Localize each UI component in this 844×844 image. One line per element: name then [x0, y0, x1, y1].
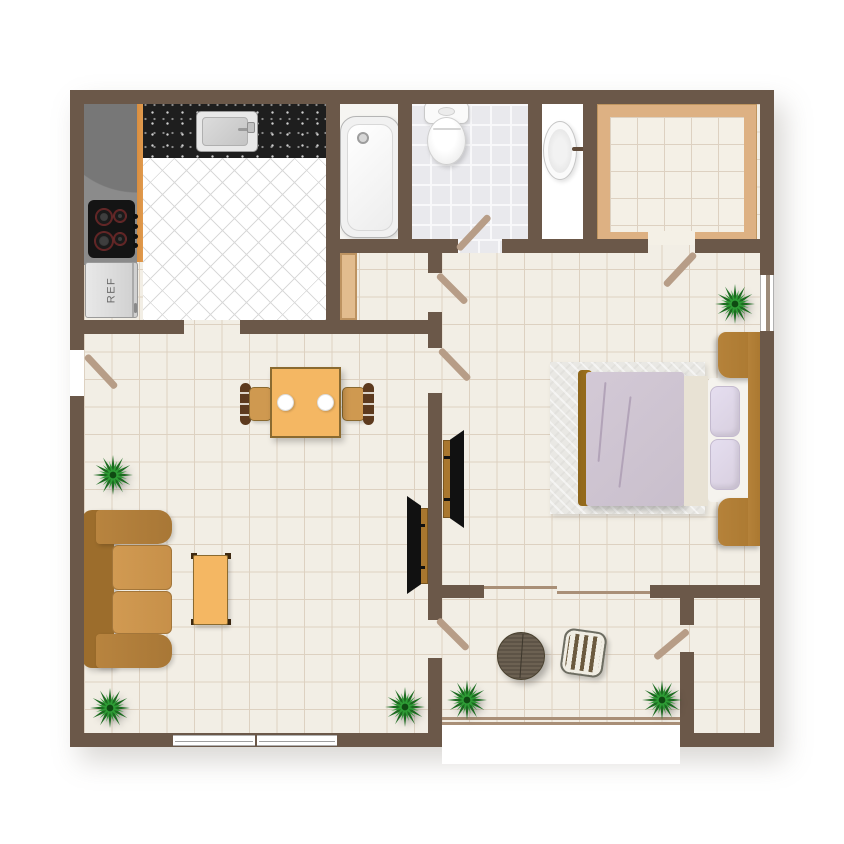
wall-bedroom-bottom-right — [650, 585, 760, 598]
wall-tub-right — [398, 104, 412, 240]
window-bedroom-right — [760, 275, 774, 331]
tv-mount-icon — [444, 498, 452, 501]
dining-chair-back — [363, 383, 374, 425]
ottoman — [193, 555, 228, 625]
floor-plan-page: { "labels": { "refrigerator": "REF" }, "… — [0, 0, 844, 844]
refrigerator-handle-icon — [134, 303, 137, 313]
hallway-cabinet — [340, 253, 357, 320]
plant-icon — [714, 283, 756, 325]
tv-mount-icon — [444, 456, 452, 459]
window-pane-line — [175, 741, 254, 742]
stove-burner-icon — [113, 232, 127, 246]
slatted-chair — [559, 627, 608, 679]
wall-outer-right — [760, 90, 774, 747]
plant-icon — [641, 679, 683, 721]
window-bottom-left — [173, 735, 255, 746]
wall-nook-left — [428, 658, 442, 747]
living-tv-screen-icon — [407, 496, 421, 594]
wall-outer-left — [70, 90, 84, 747]
sofa-armrest — [96, 510, 172, 544]
window-bottom-right — [257, 735, 337, 746]
entry-door-opening — [70, 350, 84, 396]
wall-storage-stub — [680, 598, 694, 625]
bedroom-sliding-door-panel — [557, 591, 650, 594]
pedestal-sink-basin — [548, 129, 572, 173]
toilet-seat-seam — [433, 128, 461, 130]
plant-icon — [92, 454, 134, 496]
stove-burner-icon — [95, 208, 113, 226]
sofa-cushion — [112, 545, 172, 590]
wall-kitchen-right — [326, 104, 340, 334]
balcony-sliding-door-panel — [442, 722, 680, 725]
bedroom-tv-screen-icon — [450, 430, 464, 528]
closet-door-threshold — [648, 231, 695, 245]
stove-knob-icon — [133, 234, 138, 239]
kitchen-floor — [143, 158, 326, 320]
toilet-flush-button-icon — [438, 107, 455, 116]
stove-burner-icon — [94, 231, 114, 251]
bed-sheet — [684, 376, 708, 506]
plate-icon — [317, 394, 334, 411]
wall-outer-bottom-left — [70, 733, 440, 747]
wall-tv-divider — [428, 393, 442, 620]
refrigerator-label: REF — [106, 277, 118, 304]
wall-bath-bottom-right — [695, 239, 760, 253]
wall-bedroom-bottom-left — [442, 585, 484, 598]
window-pane-line — [259, 741, 336, 742]
wall-outer-bottom-right — [680, 733, 774, 747]
plant-icon — [384, 686, 426, 728]
round-wicker-table — [497, 632, 545, 680]
bedroom-sliding-door-panel — [484, 586, 557, 589]
pillow — [710, 439, 740, 490]
stove-knob-icon — [133, 214, 138, 219]
kitchen-sink-basin — [202, 117, 248, 146]
sofa-cushion — [112, 591, 172, 634]
bathroom-tile-floor — [410, 104, 528, 239]
pillow — [710, 386, 740, 437]
bathtub-basin — [347, 124, 393, 231]
wall-bath-bottom-left — [326, 239, 458, 253]
dining-chair-right — [342, 387, 365, 421]
wall-living-top — [240, 320, 442, 334]
bathtub-drain-icon — [357, 132, 369, 144]
tv-mount-icon — [417, 566, 425, 569]
wall-kitchen-bottom — [84, 320, 184, 334]
stove — [88, 200, 135, 258]
wall-niche-left — [528, 104, 542, 239]
wall-hall-mid — [428, 312, 442, 348]
wall-hall-stub — [428, 253, 442, 273]
toilet-bowl — [427, 117, 466, 165]
plant-icon — [446, 679, 488, 721]
tv-mount-icon — [417, 524, 425, 527]
plant-icon — [89, 687, 131, 729]
wall-outer-top — [70, 90, 774, 104]
dining-chair-left — [249, 387, 272, 421]
stove-knob-icon — [133, 243, 138, 248]
closet-floor — [610, 117, 744, 232]
plate-icon — [277, 394, 294, 411]
stove-knob-icon — [133, 224, 138, 229]
wall-bath-bottom-mid — [502, 239, 648, 253]
refrigerator: REF — [85, 262, 138, 318]
kitchen-faucet-handle-icon — [247, 122, 255, 133]
outside-area — [442, 724, 680, 764]
wall-niche-right — [583, 104, 597, 239]
sofa-armrest — [96, 634, 172, 668]
stove-burner-icon — [113, 209, 127, 223]
window-mullion — [766, 275, 770, 331]
